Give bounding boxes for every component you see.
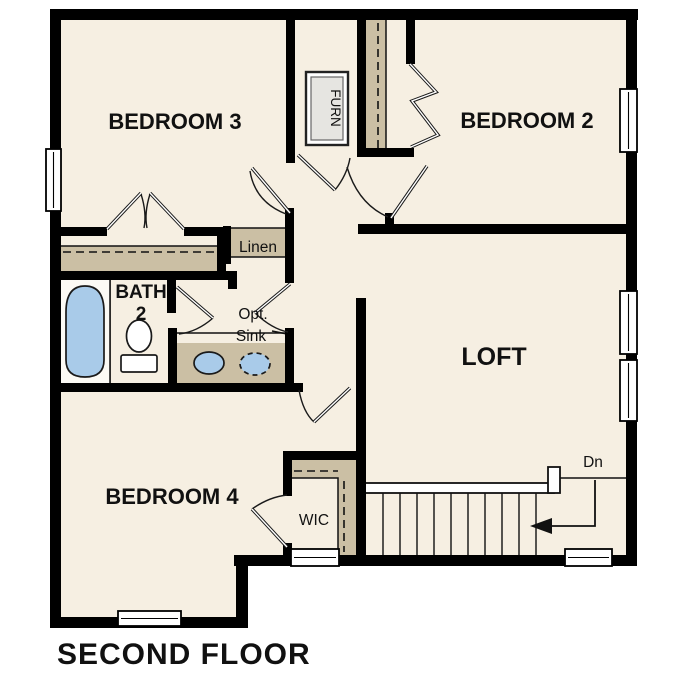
window [565, 549, 612, 566]
wic-shelf-right [338, 460, 356, 555]
window [620, 89, 637, 152]
window [620, 360, 637, 421]
window [118, 611, 181, 626]
bedroom2-label: BEDROOM 2 [460, 108, 593, 133]
bedroom2-closet-shelf [366, 20, 386, 150]
floor-plan-page: BEDROOM 3 BEDROOM 2 LOFT BEDROOM 4 BATH … [0, 0, 687, 687]
floor-plan-drawing: BEDROOM 3 BEDROOM 2 LOFT BEDROOM 4 BATH … [0, 0, 687, 687]
bathtub [66, 286, 104, 377]
optional-sink-label-line2: Sink [236, 328, 266, 345]
toilet-tank [121, 355, 157, 372]
optional-sink [240, 353, 270, 375]
bath2-label-line1: BATH [115, 282, 166, 303]
plan-title: SECOND FLOOR [57, 638, 311, 671]
vanity-sink [194, 352, 224, 374]
optional-sink-label-line1: Opt. [238, 306, 267, 323]
stairs-down-label: Dn [583, 454, 603, 471]
bedroom4-label: BEDROOM 4 [105, 484, 239, 509]
window [291, 549, 339, 566]
linen-label: Linen [239, 239, 277, 256]
wic-label: WIC [299, 512, 329, 529]
loft-label: LOFT [461, 343, 526, 371]
bath2-label-line2: 2 [136, 304, 147, 325]
stair-handrail-return [548, 467, 560, 493]
window [46, 149, 61, 211]
bedroom3-label: BEDROOM 3 [108, 109, 241, 134]
furnace-label: FURN [328, 89, 343, 127]
stair-handrail [364, 483, 554, 493]
bedroom3-closet-shelf [61, 246, 226, 271]
window [620, 291, 637, 354]
